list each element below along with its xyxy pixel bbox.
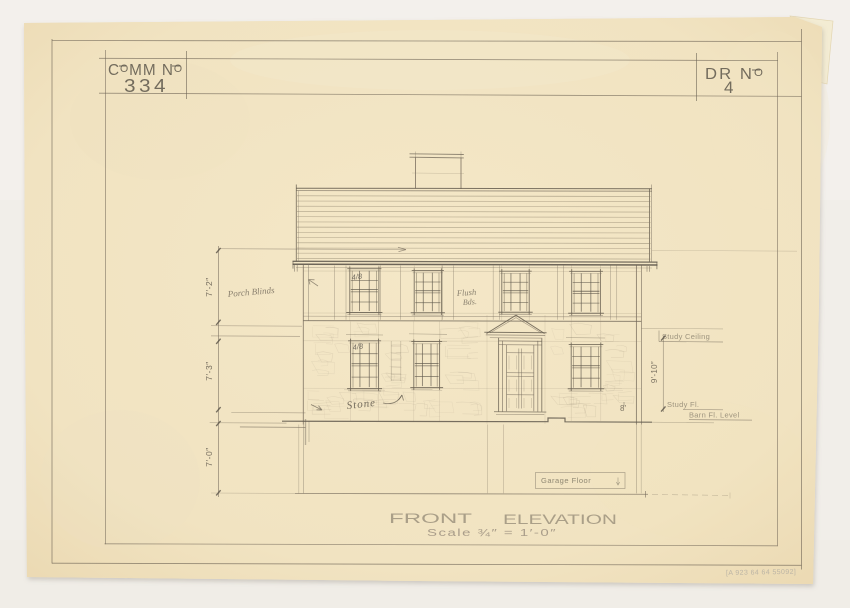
svg-text:4/8: 4/8 xyxy=(351,272,363,282)
svg-text:Study Ceiling: Study Ceiling xyxy=(662,332,710,341)
svg-text:7′-0″: 7′-0″ xyxy=(204,447,214,466)
svg-text:Scale ¾″ = 1′-0″: Scale ¾″ = 1′-0″ xyxy=(427,528,557,539)
svg-text:8′: 8′ xyxy=(620,404,626,413)
svg-text:Garage Floor: Garage Floor xyxy=(541,476,591,485)
svg-text:Study Fl.: Study Fl. xyxy=(667,400,699,409)
svg-text:334: 334 xyxy=(124,76,169,96)
svg-text:4/8: 4/8 xyxy=(352,342,364,352)
svg-text:9′-10″: 9′-10″ xyxy=(650,361,659,383)
svg-text:Bds.: Bds. xyxy=(463,297,478,307)
svg-text:4: 4 xyxy=(724,78,733,97)
svg-text:7′-2″: 7′-2″ xyxy=(204,277,214,296)
svg-text:7′-3″: 7′-3″ xyxy=(204,361,214,380)
svg-text:Barn Fl. Level: Barn Fl. Level xyxy=(689,411,740,420)
svg-text:ELEVATION: ELEVATION xyxy=(503,512,617,527)
svg-text:FRONT: FRONT xyxy=(389,511,472,526)
svg-text:[A 923 64 64 55092]: [A 923 64 64 55092] xyxy=(726,569,796,577)
